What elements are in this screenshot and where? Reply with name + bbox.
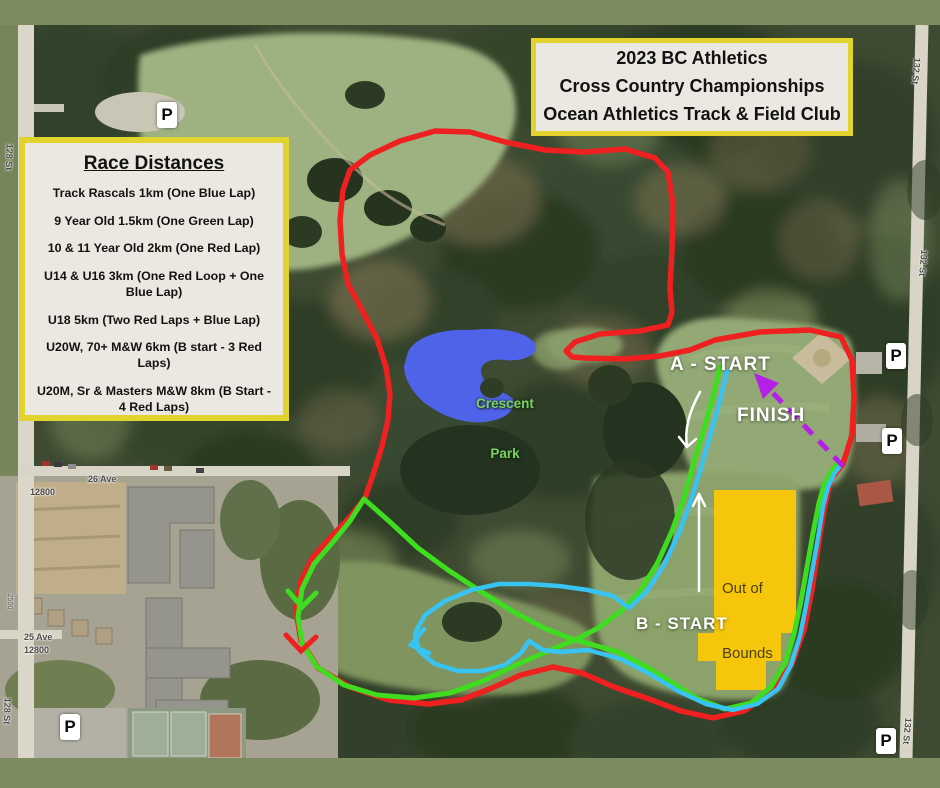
race-item: 10 & 11 Year Old 2km (One Red Lap)	[34, 240, 274, 256]
race-item: 9 Year Old 1.5km (One Green Lap)	[34, 213, 274, 229]
urban-block	[0, 476, 340, 760]
title-line-1: 2023 BC Athletics	[536, 45, 848, 73]
parking-icon: P	[886, 343, 906, 369]
finish-label: FINISH	[737, 405, 805, 427]
parked-car	[42, 461, 50, 466]
block-number-label: 12800	[24, 645, 49, 655]
title-box: 2023 BC Athletics Cross Country Champion…	[531, 38, 853, 136]
race-item: U14 & U16 3km (One Red Loop + One Blue L…	[34, 268, 274, 300]
crescent-park-label: Crescent Park	[460, 362, 550, 497]
title-line-3: Ocean Athletics Track & Field Club	[536, 101, 848, 129]
parking-icon: P	[876, 728, 896, 754]
race-item: U20M, Sr & Masters M&W 8km (B Start - 4 …	[34, 383, 274, 415]
title-line-2: Cross Country Championships	[536, 73, 848, 101]
street-label-26-ave: 26 Ave	[88, 474, 116, 484]
street-label-25-ave: 25 Ave	[24, 632, 52, 642]
block-number-label: 12800	[30, 487, 55, 497]
street-label-128-st: 128 St	[2, 698, 13, 725]
race-item: U18 5km (Two Red Laps + Blue Lap)	[34, 312, 274, 328]
out-of-bounds-label: Out of Bounds	[722, 534, 773, 708]
frame-bottom	[0, 758, 940, 788]
parking-icon: P	[60, 714, 80, 740]
house-number-label: 2500	[6, 594, 14, 610]
race-item: Track Rascals 1km (One Blue Lap)	[34, 185, 274, 201]
parking-icon: P	[157, 102, 177, 128]
b-start-label: B - START	[636, 614, 728, 634]
course-map-poster: 2023 BC Athletics Cross Country Champion…	[0, 0, 940, 788]
race-distances-box: Race Distances Track Rascals 1km (One Bl…	[19, 137, 289, 421]
parking-icon: P	[882, 428, 902, 454]
red-roof-building	[857, 480, 894, 507]
race-distances-title: Race Distances	[34, 153, 274, 175]
a-start-label: A - START	[670, 354, 771, 376]
street-label-128-st: 128 St	[4, 144, 15, 171]
race-item: U20W, 70+ M&W 6km (B start - 3 Red Laps)	[34, 339, 274, 371]
frame-top	[0, 0, 940, 25]
